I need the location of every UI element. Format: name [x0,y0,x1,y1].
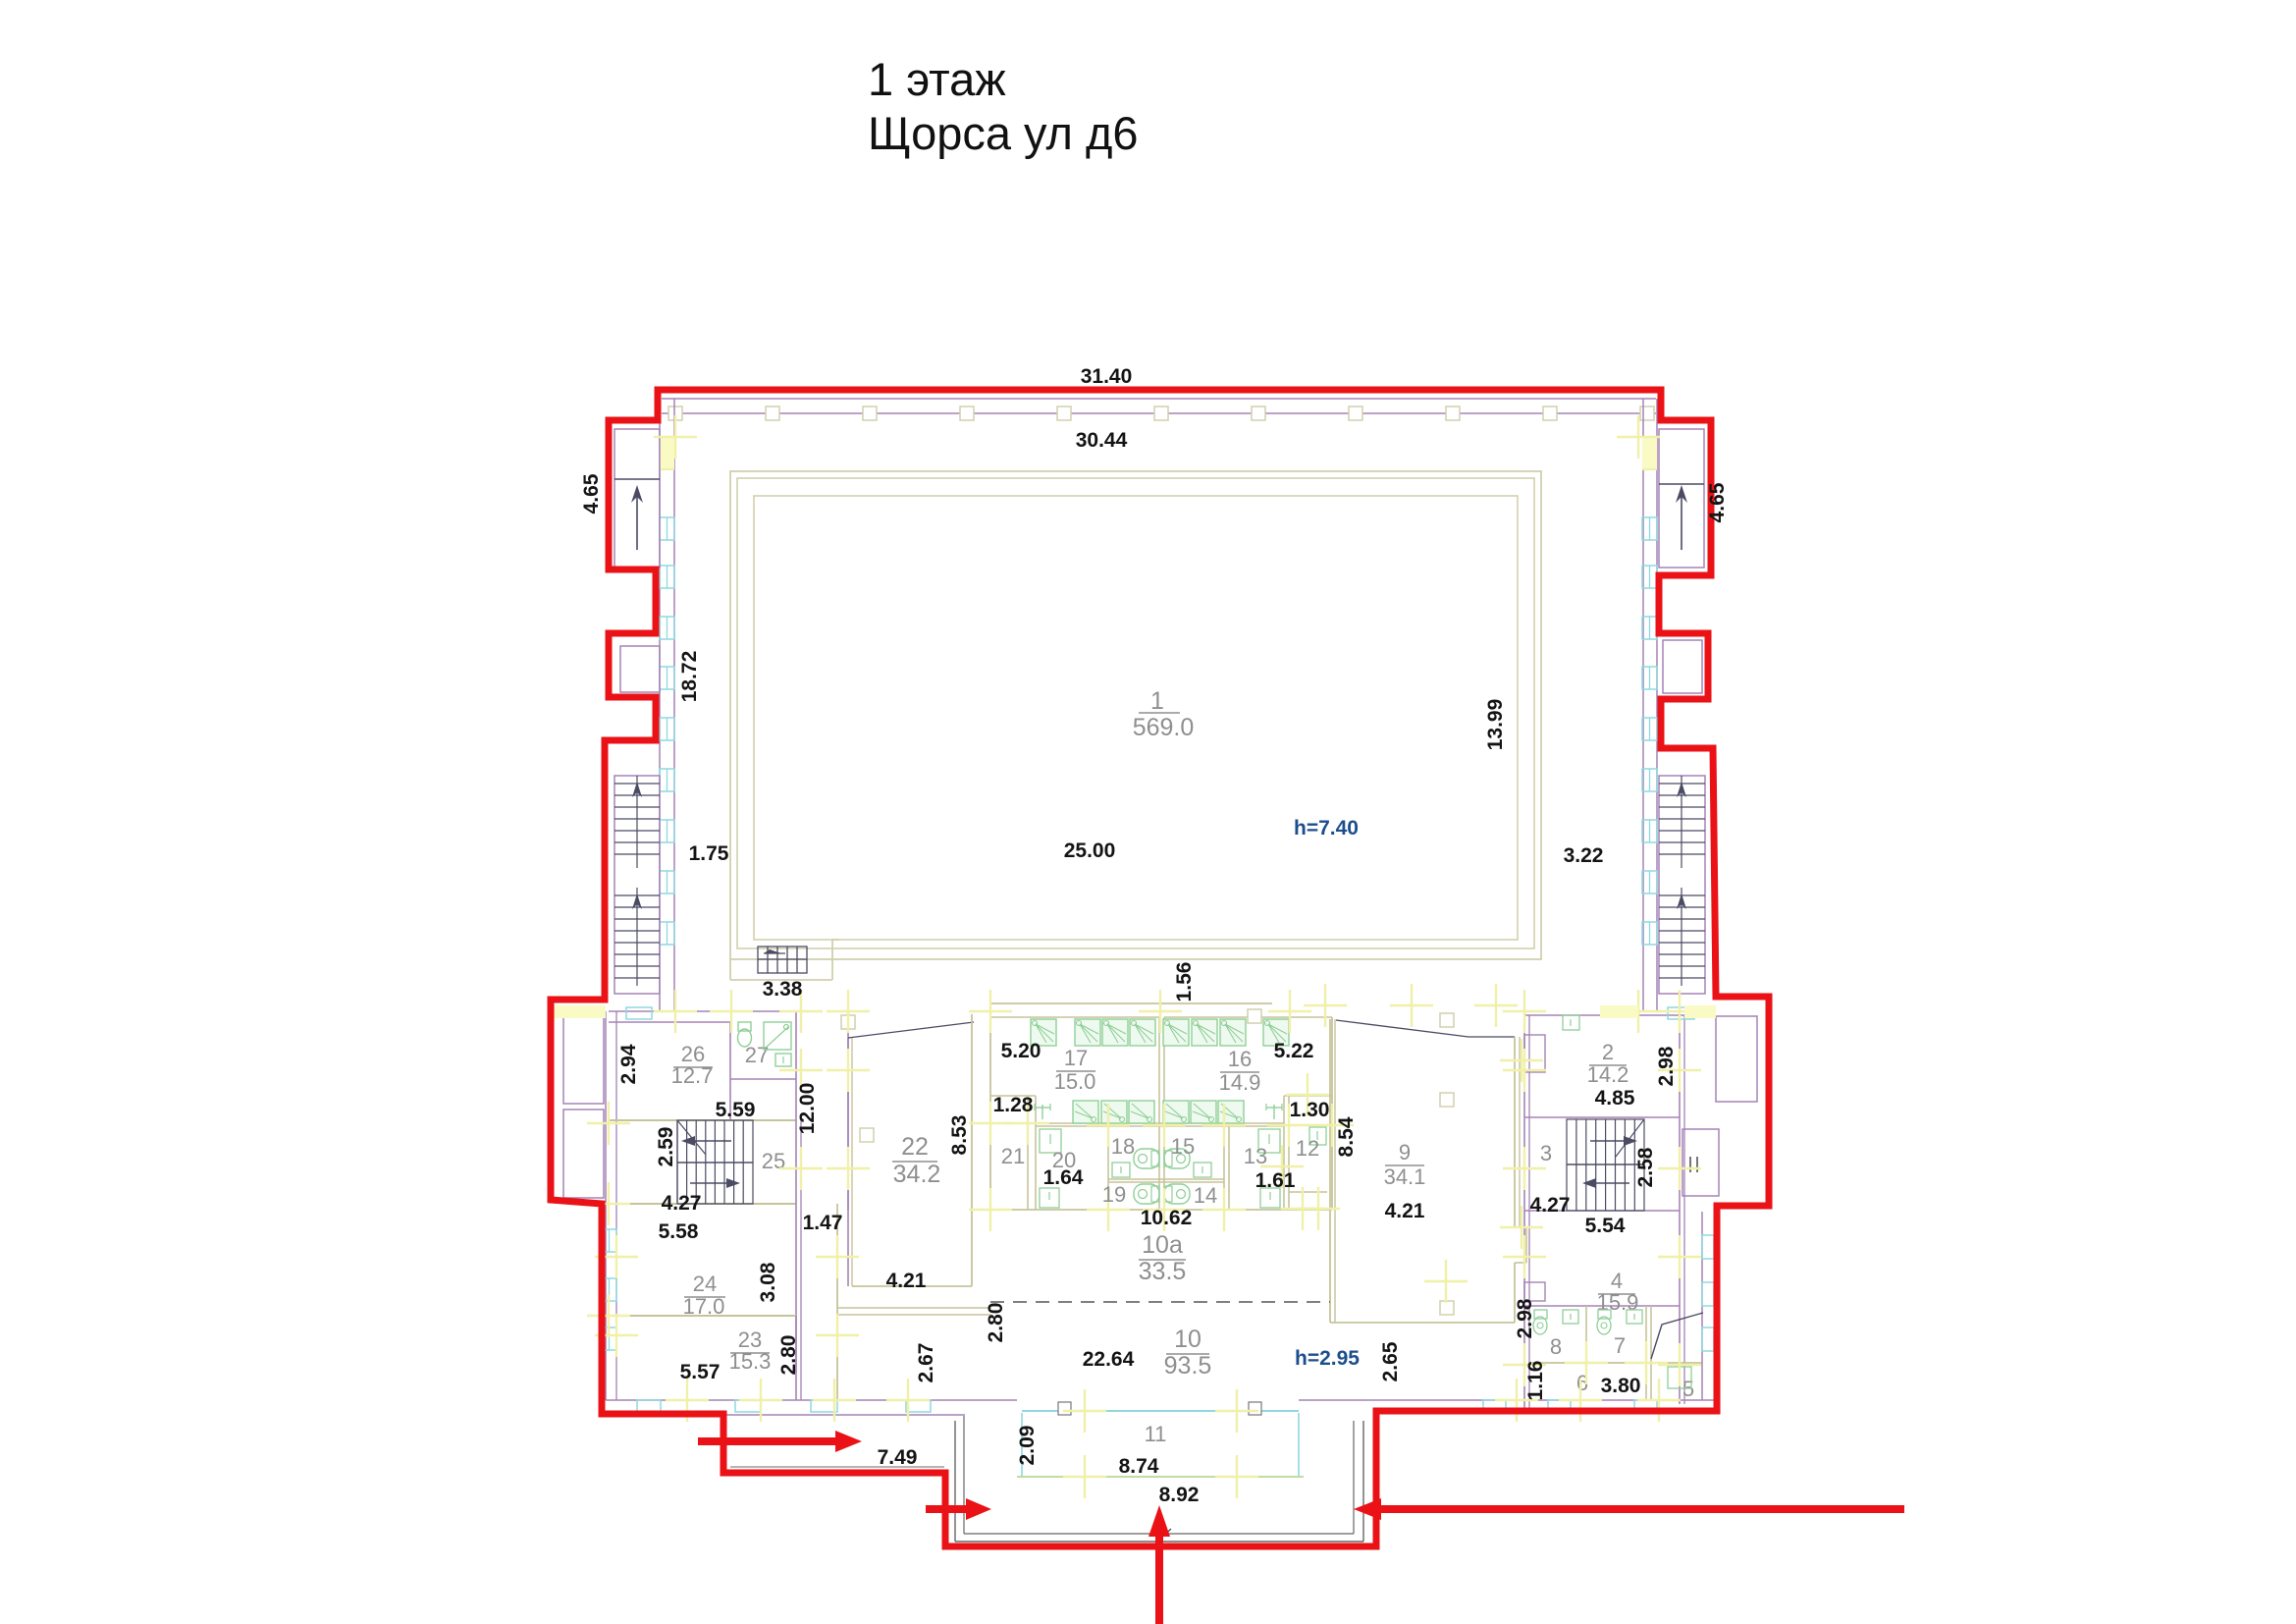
svg-text:3: 3 [1540,1141,1552,1165]
svg-text:17: 17 [1064,1046,1088,1070]
svg-text:14.2: 14.2 [1587,1062,1629,1087]
svg-text:2.80: 2.80 [777,1335,800,1376]
svg-text:h=7.40: h=7.40 [1294,817,1359,839]
svg-text:569.0: 569.0 [1133,714,1195,741]
svg-text:15.0: 15.0 [1054,1069,1096,1094]
svg-text:1.16: 1.16 [1524,1361,1547,1401]
svg-text:7.49: 7.49 [878,1446,918,1469]
svg-text:4.21: 4.21 [1385,1200,1425,1222]
svg-text:22.64: 22.64 [1083,1348,1135,1371]
svg-text:4.65: 4.65 [1706,482,1729,522]
svg-text:15.3: 15.3 [729,1349,772,1374]
svg-text:2.98: 2.98 [1655,1046,1678,1086]
svg-text:4.65: 4.65 [580,473,603,514]
svg-text:9: 9 [1399,1140,1411,1164]
svg-text:2: 2 [1602,1040,1614,1064]
svg-text:3.22: 3.22 [1564,844,1604,867]
svg-text:4.27: 4.27 [1530,1194,1571,1217]
svg-text:2.09: 2.09 [1016,1426,1039,1466]
svg-text:8.53: 8.53 [948,1115,971,1156]
svg-text:15.9: 15.9 [1597,1290,1639,1315]
svg-text:3.38: 3.38 [763,978,803,1001]
svg-text:34.1: 34.1 [1384,1164,1426,1189]
svg-text:10.62: 10.62 [1141,1207,1193,1229]
svg-text:8: 8 [1550,1334,1562,1359]
svg-text:18: 18 [1111,1134,1135,1159]
svg-text:8.54: 8.54 [1335,1116,1358,1157]
svg-text:3.08: 3.08 [757,1262,779,1302]
svg-text:2.65: 2.65 [1379,1341,1402,1381]
svg-text:5.22: 5.22 [1274,1040,1314,1062]
svg-text:13: 13 [1244,1144,1267,1168]
svg-text:14: 14 [1194,1183,1217,1208]
svg-text:12: 12 [1296,1136,1319,1161]
svg-text:16: 16 [1228,1047,1252,1071]
svg-text:25.00: 25.00 [1064,839,1116,862]
svg-text:1.47: 1.47 [803,1212,843,1234]
svg-text:5.58: 5.58 [659,1220,699,1243]
svg-text:18.72: 18.72 [678,651,701,703]
svg-text:4.27: 4.27 [662,1192,702,1215]
svg-text:20: 20 [1052,1148,1076,1172]
svg-text:24: 24 [693,1272,717,1296]
svg-text:10a: 10a [1142,1231,1183,1259]
svg-text:2.98: 2.98 [1514,1298,1536,1338]
svg-text:33.5: 33.5 [1139,1258,1187,1285]
svg-text:13.99: 13.99 [1484,699,1507,751]
svg-text:1.28: 1.28 [993,1094,1034,1116]
svg-text:22: 22 [901,1133,929,1161]
svg-text:8.74: 8.74 [1119,1455,1159,1478]
svg-text:5.54: 5.54 [1585,1215,1626,1237]
svg-text:5.57: 5.57 [680,1361,721,1383]
svg-text:1.30: 1.30 [1290,1099,1330,1121]
svg-text:8.92: 8.92 [1159,1484,1200,1506]
svg-text:19: 19 [1102,1182,1126,1207]
svg-text:1 этаж: 1 этаж [868,53,1006,105]
svg-text:31.40: 31.40 [1081,365,1133,388]
svg-text:17.0: 17.0 [683,1294,725,1319]
svg-text:4.85: 4.85 [1595,1087,1635,1110]
svg-text:Щорса ул д6: Щорса ул д6 [868,107,1139,159]
svg-text:7: 7 [1614,1333,1626,1358]
svg-text:2.80: 2.80 [985,1303,1007,1343]
svg-text:1: 1 [1150,687,1164,715]
svg-text:12.00: 12.00 [796,1083,819,1135]
svg-text:11: 11 [1145,1422,1167,1446]
svg-text:2.67: 2.67 [915,1343,937,1383]
svg-text:15: 15 [1171,1134,1195,1159]
svg-text:1.56: 1.56 [1173,962,1196,1002]
svg-text:5.59: 5.59 [716,1099,756,1121]
svg-text:10: 10 [1174,1326,1201,1353]
svg-text:5.20: 5.20 [1001,1040,1041,1062]
svg-text:93.5: 93.5 [1164,1352,1212,1380]
svg-text:34.2: 34.2 [893,1161,941,1188]
svg-text:4.21: 4.21 [886,1270,927,1292]
svg-text:h=2.95: h=2.95 [1295,1347,1360,1370]
svg-text:1.75: 1.75 [689,842,729,865]
svg-text:2.58: 2.58 [1634,1147,1657,1187]
svg-text:14.9: 14.9 [1219,1070,1261,1095]
svg-text:3.80: 3.80 [1601,1375,1641,1397]
svg-text:27: 27 [745,1043,769,1067]
svg-text:2.59: 2.59 [655,1127,677,1167]
svg-text:2.94: 2.94 [617,1044,640,1084]
svg-text:12.7: 12.7 [671,1063,714,1088]
svg-text:1.61: 1.61 [1255,1169,1296,1192]
svg-text:30.44: 30.44 [1076,429,1128,452]
svg-text:25: 25 [762,1149,785,1173]
svg-text:21: 21 [1001,1144,1025,1168]
